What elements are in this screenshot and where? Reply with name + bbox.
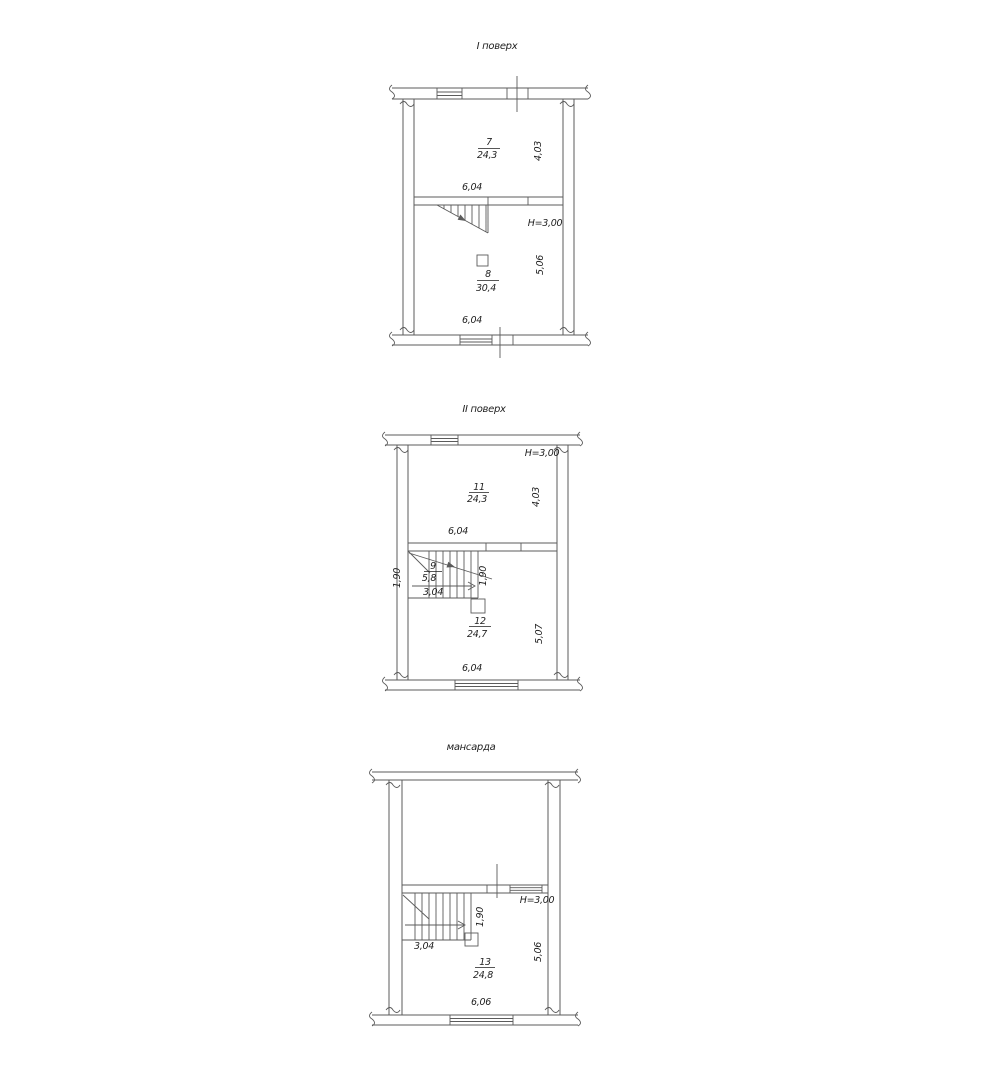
room-area: 24,7 [467,629,487,640]
dimension-label: 1,90 [392,568,403,588]
window-symbol [450,1015,513,1025]
flue-square [471,599,485,613]
floor-plan-second: II поверх H=3,00 11 24,3 4,03 6,04 9 5,8… [383,404,583,691]
door-opening-ticks [488,197,528,205]
window-symbol [460,335,492,345]
dimension-label: 6,04 [462,315,482,326]
dimension-label: 6,04 [462,182,482,193]
stair-direction-arrow [447,562,456,568]
plan-title: II поверх [462,404,506,415]
room-area: 5,8 [422,573,436,584]
flue-square [465,933,478,946]
door-opening-ticks [486,543,521,551]
height-label: H=3,00 [528,218,563,229]
floor-plan-first: I поверх 7 24,3 6,04 4,03 H=3,00 8 30,4 … [390,41,591,358]
floor-plans-drawing: I поверх 7 24,3 6,04 4,03 H=3,00 8 30,4 … [0,0,1000,1092]
room-number: 12 [474,616,486,627]
room-number: 7 [486,137,492,148]
dimension-label: 4,03 [531,487,542,507]
dimension-label: 6,04 [448,526,468,537]
floor-plans-sheet: I поверх 7 24,3 6,04 4,03 H=3,00 8 30,4 … [0,0,1000,1092]
dimension-label: 1,90 [475,907,486,927]
room-number: 11 [473,482,485,493]
wall-break-marks [390,85,591,346]
wall-break-marks [383,432,583,691]
height-label: H=3,00 [525,448,560,459]
section-line [500,327,513,358]
dimension-label: 6,06 [471,997,491,1008]
stair-symbol [437,205,488,233]
dimension-label: 1,90 [478,566,489,586]
section-line [507,76,528,112]
room-number: 13 [479,957,491,968]
dimension-label: 5,06 [533,942,544,962]
floor-plan-attic: мансарда H=3,00 1,90 3,04 13 24,8 5,06 6… [370,742,581,1026]
dimension-label: 4,03 [533,141,544,161]
stair-symbol [402,893,471,940]
flue-square [477,255,488,266]
dimension-label: 5,07 [534,624,545,644]
room-area: 24,3 [477,150,497,161]
room-area: 24,3 [467,494,487,505]
room-area: 24,8 [473,970,493,981]
wall-lines [385,435,580,690]
window-symbol [455,680,518,690]
plan-title: мансарда [447,742,496,753]
dimension-label: 3,04 [423,587,443,598]
room-number: 9 [430,561,436,572]
dimension-label: 5,06 [535,255,546,275]
height-label: H=3,00 [520,895,555,906]
window-symbol [431,435,458,445]
room-area: 30,4 [476,283,496,294]
plan-title: I поверх [477,41,518,52]
wall-lines [392,88,588,345]
window-symbol [510,885,542,893]
room-number: 8 [485,269,491,280]
dimension-label: 6,04 [462,663,482,674]
dimension-label: 3,04 [414,941,434,952]
window-symbol [437,88,462,99]
